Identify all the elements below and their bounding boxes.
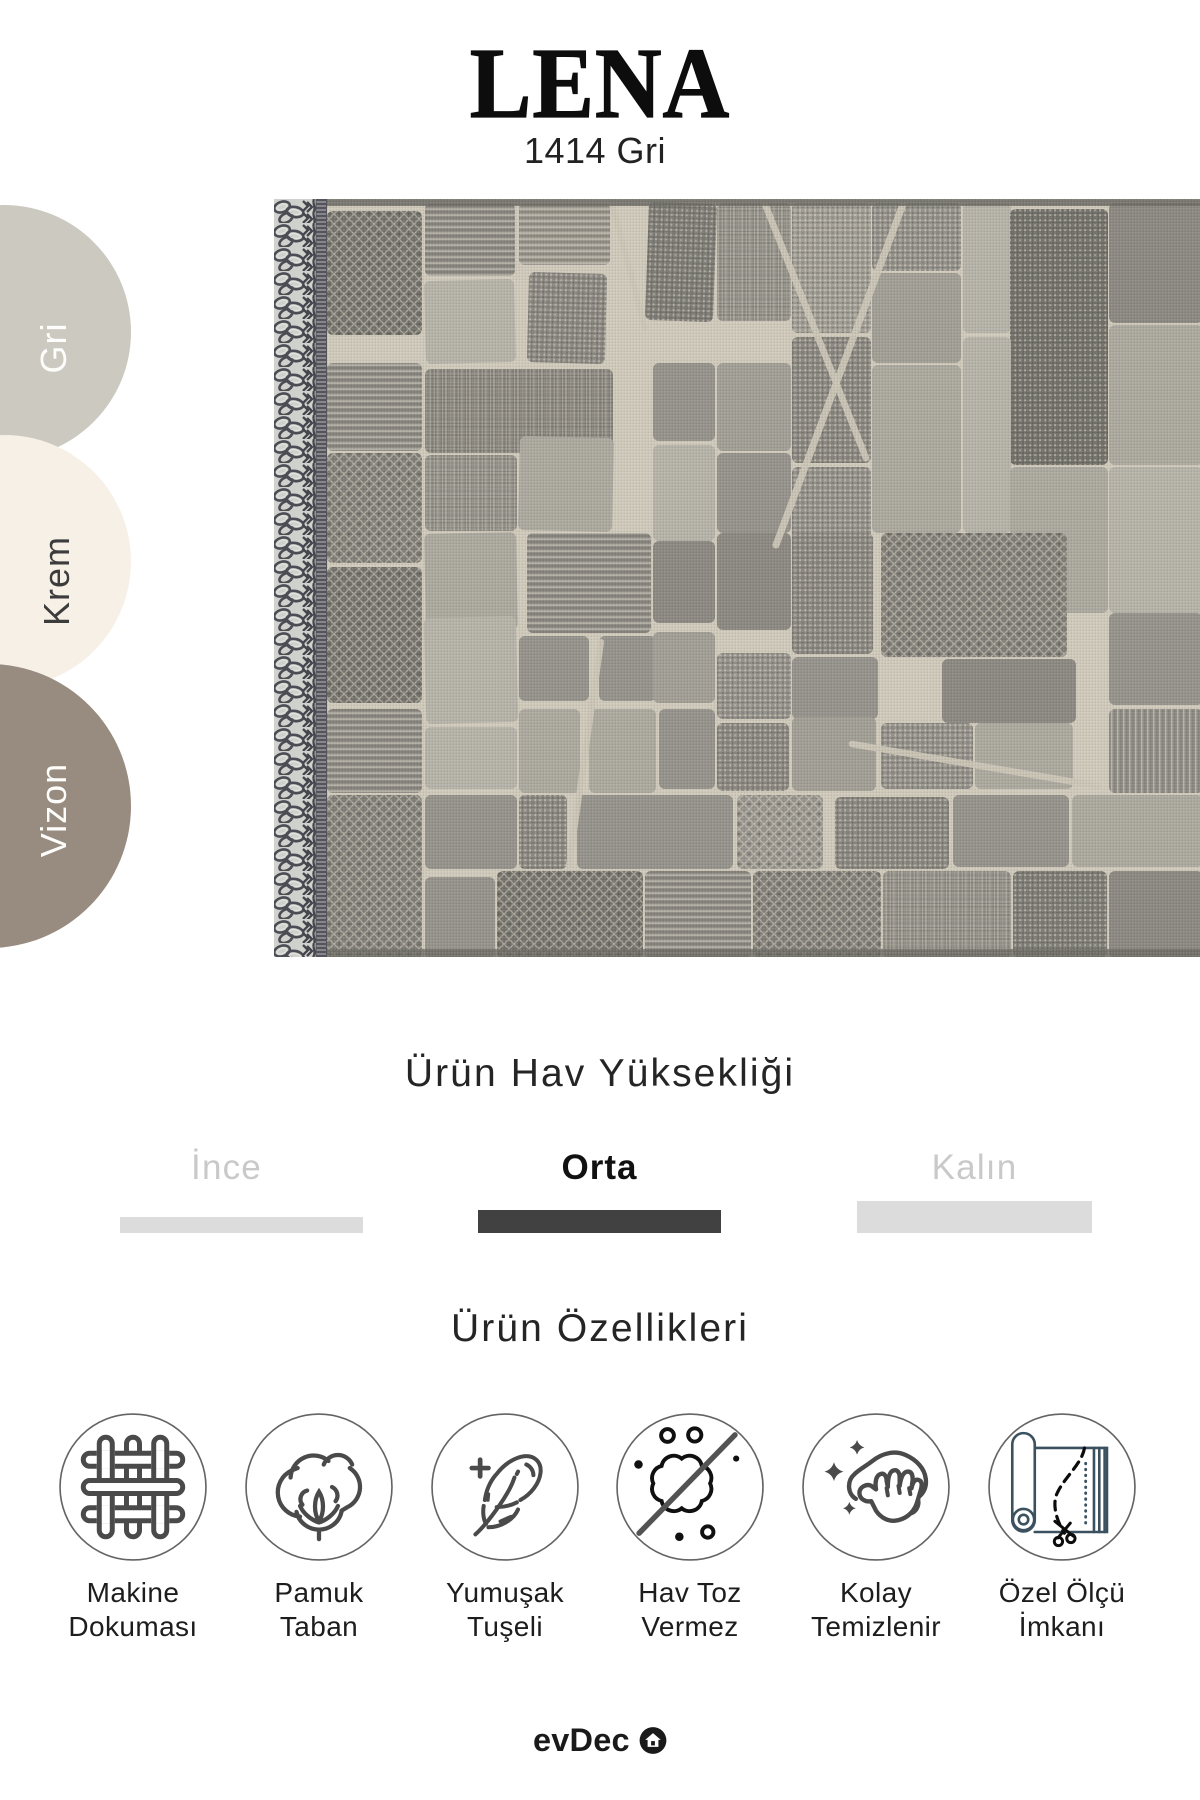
svg-text:evDec: evDec	[533, 1724, 630, 1758]
